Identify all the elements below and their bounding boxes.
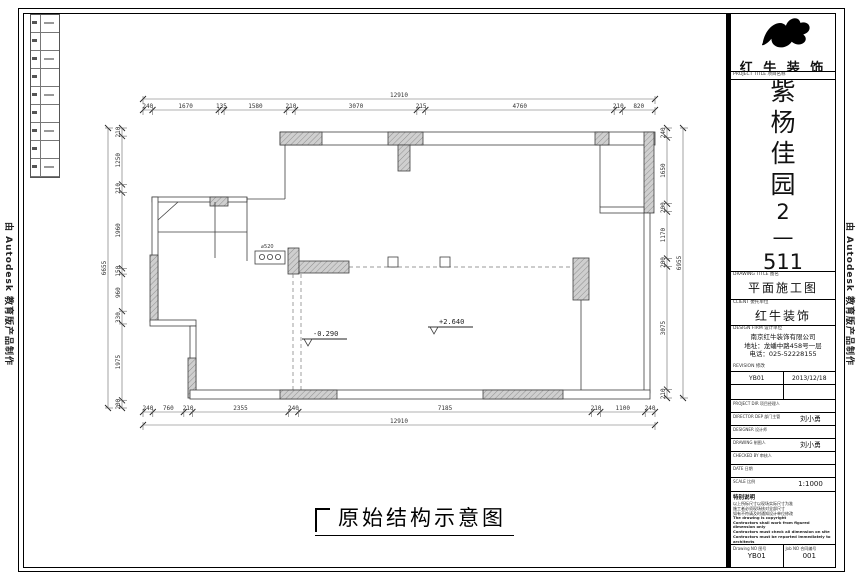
svg-text:215: 215 — [416, 103, 427, 110]
signature-row-value: 1:1000 — [786, 478, 835, 491]
signature-row-value — [786, 465, 835, 477]
revision-no: YB01 — [731, 372, 784, 384]
design-firm-line: 电话：025-52228155 — [731, 350, 835, 359]
signature-row: PROJECT DIR 项目经理人 — [731, 400, 835, 413]
signature-row-value — [786, 400, 835, 412]
client-label: CLIENT 委托单位 — [731, 300, 835, 307]
floor-plan: ⌀520 -0.290 +2.640 129102401670135158021… — [95, 80, 695, 440]
svg-text:210: 210 — [115, 126, 122, 137]
project-name: 紫杨佳园2—511 — [731, 80, 835, 272]
logo-section: 红 牛 装 饰 — [731, 14, 835, 72]
svg-text:135: 135 — [216, 103, 227, 110]
client-value: 红牛装饰 — [731, 307, 835, 324]
project-name-char: 紫 — [770, 80, 795, 107]
signature-row-label: DESIGNER 设计师 — [731, 426, 786, 438]
empty-row — [731, 385, 835, 400]
svg-text:240: 240 — [288, 405, 299, 412]
signature-row-label: CHECKED BY 审核人 — [731, 452, 786, 464]
revision-strip-row — [31, 123, 59, 141]
svg-text:760: 760 — [163, 405, 174, 412]
note-line-en: Contractors must be reported immediately… — [733, 535, 833, 544]
revision-strip-row — [31, 87, 59, 105]
svg-text:12910: 12910 — [390, 418, 408, 425]
svg-text:240: 240 — [142, 405, 153, 412]
svg-text:210: 210 — [613, 103, 624, 110]
svg-text:1250: 1250 — [115, 153, 122, 168]
project-name-char: 杨 — [770, 107, 795, 138]
revision-strip-table — [30, 14, 60, 178]
project-name-char: 园 — [770, 169, 795, 200]
svg-text:3070: 3070 — [349, 103, 364, 110]
signature-row-value: 刘小勇 — [786, 413, 835, 425]
revision-strip-row — [31, 105, 59, 123]
number-row: Drawing NO 图号 YB01 Job NO 合同编号 001 — [731, 545, 835, 567]
project-name-char: 511 — [763, 250, 803, 272]
project-name-char: 佳 — [770, 138, 795, 169]
signature-row-value: 刘小勇 — [786, 439, 835, 451]
svg-text:210: 210 — [591, 405, 602, 412]
signature-row: DIRECTOR DEP 部门主管刘小勇 — [731, 413, 835, 426]
drawing-title-value: 平面施工图 — [731, 279, 835, 296]
svg-text:4760: 4760 — [513, 103, 528, 110]
revision-strip-row — [31, 141, 59, 159]
project-name-char: 2 — [776, 200, 789, 225]
caption-corner-mark — [315, 508, 330, 532]
revision-strip-row — [31, 51, 59, 69]
level-markers: -0.290 +2.640 — [302, 318, 473, 346]
svg-text:200: 200 — [660, 202, 667, 213]
drawing-title-section: DRAWING TITLE 图名 平面施工图 — [731, 272, 835, 300]
svg-text:330: 330 — [115, 312, 122, 323]
level-label-low: -0.290 — [313, 330, 338, 338]
autodesk-watermark-right: 由 Autodesk 教育版产品制作 — [844, 222, 857, 366]
svg-text:240: 240 — [660, 127, 667, 138]
brand-name: 红 牛 装 饰 — [731, 57, 835, 72]
svg-text:240: 240 — [645, 405, 656, 412]
svg-text:150: 150 — [115, 265, 122, 276]
project-title-label: PROJECT TITLE 项目名称 — [731, 72, 835, 80]
drawing-sheet: 由 Autodesk 教育版产品制作 由 Autodesk 教育版产品制作 — [0, 0, 860, 580]
signature-row-label: SCALE 比例 — [731, 478, 786, 491]
level-label-high: +2.640 — [439, 318, 464, 326]
red-bull-logo-icon — [754, 14, 812, 52]
revision-date: 2013/12/18 — [784, 372, 836, 384]
design-firm-info: 南京红牛装饰有限公司地址：龙蟠中路458号一层电话：025-52228155 — [731, 333, 835, 359]
flue-symbol: ⌀520 — [255, 244, 285, 264]
signature-row: CHECKED BY 审核人 — [731, 452, 835, 465]
revision-row: YB01 2013/12/18 — [731, 372, 835, 385]
job-no-label: Job NO 合同编号 — [784, 545, 836, 552]
svg-text:200: 200 — [115, 398, 122, 409]
notes-title: 特别说明 — [733, 493, 833, 501]
project-name-char: — — [773, 225, 794, 250]
caption-text: 原始结构示意图 — [338, 502, 506, 532]
signature-row: SCALE 比例1:1000 — [731, 478, 835, 491]
signature-row-value — [786, 426, 835, 438]
signature-rows: PROJECT DIR 项目经理人DIRECTOR DEP 部门主管刘小勇DES… — [731, 400, 835, 492]
svg-text:7185: 7185 — [438, 405, 453, 412]
job-no-value: 001 — [784, 552, 836, 560]
flue-label: ⌀520 — [261, 244, 274, 250]
autodesk-watermark-left: 由 Autodesk 教育版产品制作 — [3, 222, 16, 366]
signature-row: DATE 日期 — [731, 465, 835, 478]
svg-text:1170: 1170 — [660, 227, 667, 242]
svg-text:210: 210 — [286, 103, 297, 110]
svg-text:6655: 6655 — [101, 260, 108, 275]
svg-text:1650: 1650 — [660, 163, 667, 178]
svg-text:6955: 6955 — [676, 255, 683, 270]
svg-text:2355: 2355 — [233, 405, 248, 412]
signature-row-label: DATE 日期 — [731, 465, 786, 477]
svg-text:1960: 1960 — [115, 223, 122, 238]
signature-row-label: DRAWING 制图人 — [731, 439, 786, 451]
design-firm-section: DESIGN FIRM 设计单位 南京红牛装饰有限公司地址：龙蟠中路458号一层… — [731, 326, 835, 372]
svg-text:200: 200 — [660, 257, 667, 268]
revision-strip-row — [31, 33, 59, 51]
revision-strip-row — [31, 159, 59, 177]
drawing-no-label: Drawing NO 图号 — [731, 545, 783, 552]
svg-text:1100: 1100 — [616, 405, 631, 412]
signature-row-value — [786, 452, 835, 464]
signature-row-label: DIRECTOR DEP 部门主管 — [731, 413, 786, 425]
svg-text:1670: 1670 — [178, 103, 193, 110]
drawing-no-value: YB01 — [731, 552, 783, 560]
svg-text:210: 210 — [183, 405, 194, 412]
svg-text:210: 210 — [660, 388, 667, 399]
svg-text:210: 210 — [115, 183, 122, 194]
notes-section: 特别说明 以上所标尺寸以现场实际尺寸为准施工者必须现场核对全部尺寸如有不符请及时… — [731, 492, 835, 545]
walls: ⌀520 — [150, 132, 655, 399]
svg-text:240: 240 — [142, 103, 153, 110]
svg-text:820: 820 — [633, 103, 644, 110]
job-no-cell: Job NO 合同编号 001 — [784, 545, 836, 567]
revision-strip-row — [31, 15, 59, 33]
client-section: CLIENT 委托单位 红牛装饰 — [731, 300, 835, 326]
design-firm-label: DESIGN FIRM 设计单位 — [731, 326, 835, 333]
svg-text:3075: 3075 — [660, 320, 667, 335]
drawing-title-label: DRAWING TITLE 图名 — [731, 272, 835, 279]
svg-text:960: 960 — [115, 287, 122, 298]
drawing-no-cell: Drawing NO 图号 YB01 — [731, 545, 784, 567]
revision-label: REVISION 修改 — [731, 364, 767, 371]
title-block: 红 牛 装 饰 PROJECT TITLE 项目名称 紫杨佳园2—511 DRA… — [726, 13, 836, 568]
design-firm-line: 南京红牛装饰有限公司 — [731, 333, 835, 342]
revision-strip-row — [31, 69, 59, 87]
signature-row-label: PROJECT DIR 项目经理人 — [731, 400, 786, 412]
drawing-caption: 原始结构示意图 — [315, 502, 514, 536]
signature-row: DRAWING 制图人刘小勇 — [731, 439, 835, 452]
svg-text:1975: 1975 — [115, 354, 122, 369]
svg-text:12910: 12910 — [390, 92, 408, 99]
signature-row: DESIGNER 设计师 — [731, 426, 835, 439]
svg-text:1580: 1580 — [248, 103, 263, 110]
